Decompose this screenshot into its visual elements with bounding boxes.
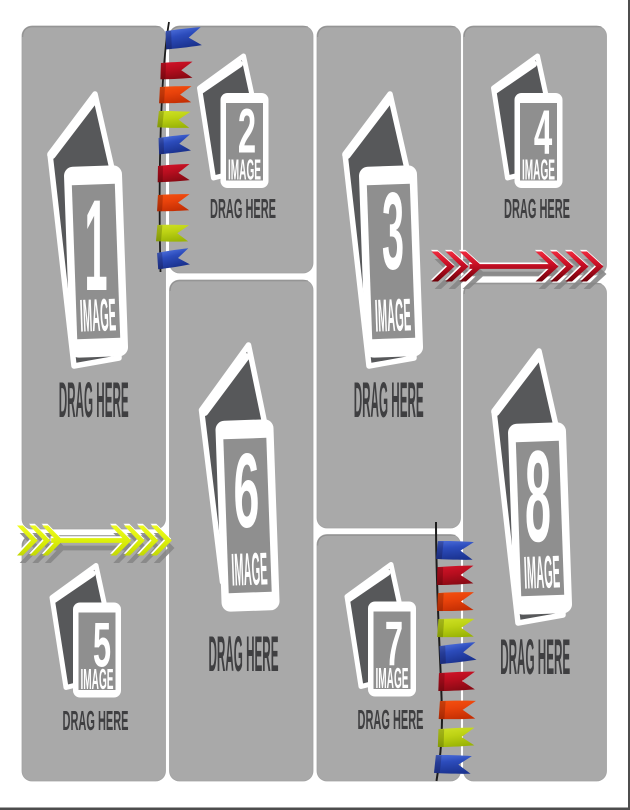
svg-text:8: 8 xyxy=(525,424,551,569)
svg-text:1: 1 xyxy=(84,174,107,318)
svg-text:DRAG HERE: DRAG HERE xyxy=(358,704,424,735)
svg-text:IMAGE: IMAGE xyxy=(230,542,268,595)
svg-text:DRAG HERE: DRAG HERE xyxy=(504,193,570,224)
svg-text:3: 3 xyxy=(382,169,404,293)
svg-text:DRAG HERE: DRAG HERE xyxy=(59,372,129,428)
svg-text:2: 2 xyxy=(238,96,256,166)
svg-text:DRAG HERE: DRAG HERE xyxy=(500,629,570,685)
svg-text:DRAG HERE: DRAG HERE xyxy=(209,626,279,682)
svg-text:DRAG HERE: DRAG HERE xyxy=(210,193,276,224)
svg-text:5: 5 xyxy=(93,610,111,680)
svg-text:4: 4 xyxy=(534,96,552,168)
svg-text:7: 7 xyxy=(385,609,403,679)
svg-text:DRAG HERE: DRAG HERE xyxy=(63,705,129,736)
svg-text:6: 6 xyxy=(234,433,260,551)
svg-text:DRAG HERE: DRAG HERE xyxy=(354,372,424,428)
